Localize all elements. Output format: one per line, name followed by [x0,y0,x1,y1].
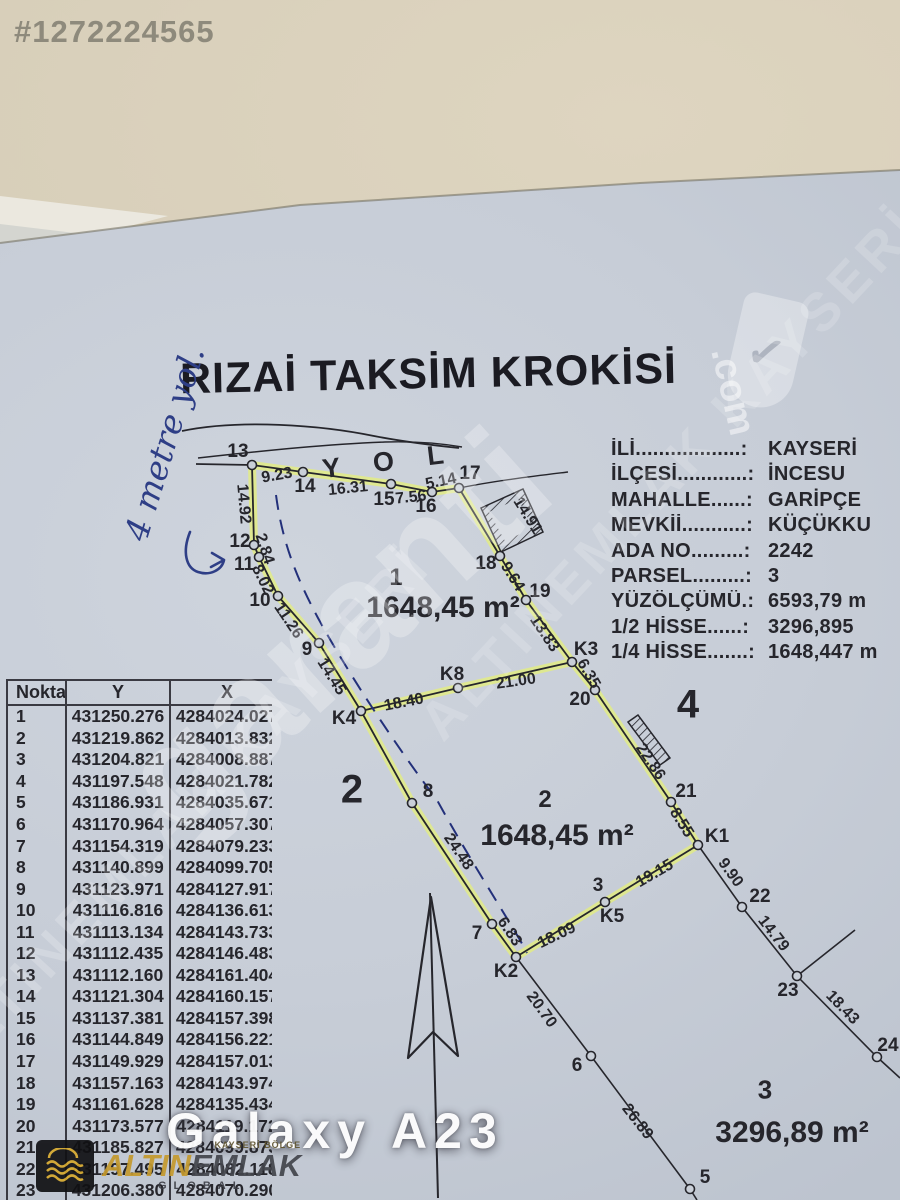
point-label: 8 [423,781,434,803]
point-label: 19 [529,581,550,603]
measurement-label: 24.48 [439,830,476,873]
table-row: 5431186.9314284035.671 [7,792,272,814]
table-cell: 4284136.613 [170,900,272,922]
info-row: İLİ..................:KAYSERİ [611,438,878,463]
table-cell: 4284013.832 [170,728,272,750]
listing-id: #1272224565 [14,14,215,50]
table-cell: 4284143.733 [170,921,272,943]
table-cell: 4284127.917 [170,878,272,900]
measurement-label: 18.09 [535,919,579,953]
info-row: 1/4 HİSSE.......:1648,447 m [611,641,878,666]
point-label: 5 [700,1167,711,1189]
coordinate-table: NoktaYX 1431250.2764284024.0272431219.86… [6,679,272,1200]
point-label: 6 [572,1055,583,1077]
table-cell: 4284157.398 [170,1008,272,1030]
photo-background: 13141516171819K32021K1222324K8K4K2K59871… [0,0,900,1200]
table-cell: 10 [7,900,66,922]
measurement-label: 13.83 [525,612,562,655]
parcel-label: 3 [758,1075,772,1106]
table-cell: 4284035.671 [170,792,272,814]
table-cell: 431137.381 [66,1008,170,1030]
parcel-label: 2 [538,786,551,814]
point-label: 13 [227,441,248,463]
measurement-label: 26.89 [618,1101,657,1144]
table-cell: 431121.304 [66,986,170,1008]
info-row: MEVKİİ...........:KÜÇÜKKU [611,514,878,539]
table-row: 9431123.9714284127.917 [7,878,272,900]
table-cell: 4284119.172 [170,1115,272,1137]
table-cell: 431186.931 [66,792,170,814]
measurement-label: 5.14 [424,470,458,494]
table-cell: 431149.929 [66,1051,170,1073]
table-cell: 5 [7,792,66,814]
table-cell: 1 [7,705,66,728]
measurement-label: 14.79 [754,913,793,956]
measurement-label: 18.43 [822,987,863,1028]
table-cell: 4284143.974 [170,1072,272,1094]
page-title: RIZAİ TAKSİM KROKİSİ [180,345,678,404]
point-label: 15 [373,489,394,511]
table-cell: 4284057.307 [170,814,272,836]
info-value: 6593,79 m [768,590,866,612]
column-header: Nokta [7,680,66,705]
table-cell: 19 [7,1094,66,1116]
table-row: 2431219.8624284013.832 [7,728,272,750]
measurement-label: 6.83 [493,914,525,950]
point-label: K8 [440,664,464,686]
table-row: 7431154.3194284079.233 [7,835,272,857]
info-value: 3 [768,565,779,587]
table-row: 3431204.8214284008.887 [7,749,272,771]
table-header-row: NoktaYX [7,680,272,705]
table-row: 18431157.1634284143.974 [7,1072,272,1094]
info-row: İLÇESİ............:İNCESU [611,463,878,488]
info-label: MAHALLE......: [611,489,768,512]
info-value: 2242 [768,540,814,562]
column-header: Y [66,680,170,705]
table-row: 4431197.5484284021.782 [7,771,272,793]
info-value: KAYSERİ [768,438,857,460]
table-cell: 7 [7,835,66,857]
table-cell: 431144.849 [66,1029,170,1051]
measurement-label: 9.64 [496,559,528,595]
measurement-label: 8.55 [665,805,697,841]
table-cell: 4284079.233 [170,835,272,857]
table-cell: 431116.816 [66,900,170,922]
table-cell: 431250.276 [66,705,170,728]
info-label: YÜZÖLÇÜMÜ.: [611,590,768,613]
table-cell: 431112.160 [66,965,170,987]
info-value: 1648,447 m [768,641,878,663]
measurement-label: 18.40 [383,690,426,715]
table-row: 10431116.8164284136.613 [7,900,272,922]
point-label: 21 [675,781,696,803]
info-row: YÜZÖLÇÜMÜ.:6593,79 m [611,590,878,615]
table-cell: 4 [7,771,66,793]
point-label: 23 [777,980,798,1002]
measurement-label: 6.35 [572,656,603,692]
measurement-label: 14.91 [509,494,545,538]
point-label: K1 [705,826,729,848]
point-label: 17 [459,463,480,485]
info-value: KÜÇÜKKU [768,514,871,536]
table-cell: 431197.548 [66,771,170,793]
info-label: PARSEL.........: [611,565,768,588]
point-label: K2 [494,961,518,983]
info-label: 1/4 HİSSE.......: [611,641,768,664]
table-cell: 4284160.157 [170,986,272,1008]
table-cell: 20 [7,1115,66,1137]
table-cell: 14 [7,986,66,1008]
parcel-label: 2 [341,768,363,813]
table-cell: 431161.628 [66,1094,170,1116]
info-label: İLÇESİ............: [611,463,768,486]
table-cell: 431112.435 [66,943,170,965]
table-cell: 431154.319 [66,835,170,857]
table-cell: 4284008.887 [170,749,272,771]
table-cell: 8 [7,857,66,879]
measurement-label: 20.70 [522,989,560,1032]
agency-name: ALTINEMLAK [102,1150,301,1181]
point-label: 18 [475,553,496,575]
agency-logo-icon [36,1140,94,1192]
table-row: 19431161.6284284135.434 [7,1094,272,1116]
table-cell: 431113.134 [66,921,170,943]
table-cell: 6 [7,814,66,836]
table-row: 1431250.2764284024.027 [7,705,272,728]
point-label: K4 [332,708,356,730]
table-cell: 12 [7,943,66,965]
parcel-label: 3296,89 m² [715,1116,868,1150]
table-row: 8431140.8994284099.705 [7,857,272,879]
parcel-label: 1648,45 m² [366,591,519,625]
table-row: 11431113.1344284143.733 [7,921,272,943]
info-value: İNCESU [768,463,845,485]
measurement-label: 19.15 [633,856,677,892]
info-label: 1/2 HİSSE......: [611,616,768,639]
parcel-label: 1648,45 m² [480,819,633,853]
measurement-label: 9.23 [260,464,294,487]
table-body: 1431250.2764284024.0272431219.8624284013… [7,705,272,1200]
table-cell: 18 [7,1072,66,1094]
table-cell: 4284146.483 [170,943,272,965]
measurement-label: 9.90 [714,855,747,891]
measurement-label: 11.26 [270,600,307,643]
table-cell: 431173.577 [66,1115,170,1137]
table-cell: 4284157.013 [170,1051,272,1073]
point-label: 24 [877,1035,898,1057]
table-cell: 3 [7,749,66,771]
info-label: ADA NO.........: [611,540,768,563]
table-cell: 4284099.705 [170,857,272,879]
table-cell: 15 [7,1008,66,1030]
measurement-label: 21.00 [495,670,537,693]
column-header: X [170,680,272,705]
table-cell: 431140.899 [66,857,170,879]
table-cell: 17 [7,1051,66,1073]
table-cell: 4284024.027 [170,705,272,728]
agency-logo-text: KAYSERİ BÖLGE ALTINEMLAK GLOBAL [102,1141,301,1192]
parcel-label: 4 [677,683,699,728]
measurement-label: 22.86 [631,740,668,783]
table-cell: 2 [7,728,66,750]
table-row: 14431121.3044284160.157 [7,986,272,1008]
table-cell: 11 [7,921,66,943]
point-label: 3 [593,875,604,897]
point-label: 7 [472,923,483,945]
table-cell: 4284021.782 [170,771,272,793]
point-label: 9 [302,639,313,661]
table-row: 12431112.4354284146.483 [7,943,272,965]
table-cell: 431204.821 [66,749,170,771]
table-cell: 9 [7,878,66,900]
table-cell: 4284156.221 [170,1029,272,1051]
table-cell: 431170.964 [66,814,170,836]
measurement-label: 7.56 [395,487,428,508]
table-cell: 431123.971 [66,878,170,900]
table-cell: 4284135.434 [170,1094,272,1116]
table-row: 6431170.9644284057.307 [7,814,272,836]
point-label: 14 [294,476,315,498]
table-cell: 4284161.404 [170,965,272,987]
table-row: 15431137.3814284157.398 [7,1008,272,1030]
info-row: 1/2 HİSSE......:3296,895 [611,616,878,641]
table-row: 16431144.8494284156.221 [7,1029,272,1051]
parcel-label: 1 [389,564,402,592]
info-row: PARSEL.........:3 [611,565,878,590]
point-label: K5 [600,906,624,928]
point-label: 12 [229,531,250,553]
waves-sun-icon [45,1148,85,1184]
measurement-label: 14.92 [232,483,253,524]
info-value: GARİPÇE [768,489,861,511]
agency-logo: KAYSERİ BÖLGE ALTINEMLAK GLOBAL [36,1140,301,1192]
point-label: 22 [749,886,770,908]
table-row: 20431173.5774284119.172 [7,1115,272,1137]
agency-sub-label: GLOBAL [158,1181,301,1192]
table-cell: 16 [7,1029,66,1051]
info-row: ADA NO.........:2242 [611,540,878,565]
measurement-label: 2.84 [251,531,278,566]
parcel-info-block: İLİ..................:KAYSERİİLÇESİ.....… [611,438,878,667]
table-row: 13431112.1604284161.404 [7,965,272,987]
table-cell: 13 [7,965,66,987]
measurement-label: 14.45 [313,655,349,699]
table-cell: 431219.862 [66,728,170,750]
info-value: 3296,895 [768,616,854,638]
info-label: İLİ..................: [611,438,768,461]
info-label: MEVKİİ...........: [611,514,768,537]
table-cell: 431157.163 [66,1072,170,1094]
table-row: 17431149.9294284157.013 [7,1051,272,1073]
info-row: MAHALLE......:GARİPÇE [611,489,878,514]
